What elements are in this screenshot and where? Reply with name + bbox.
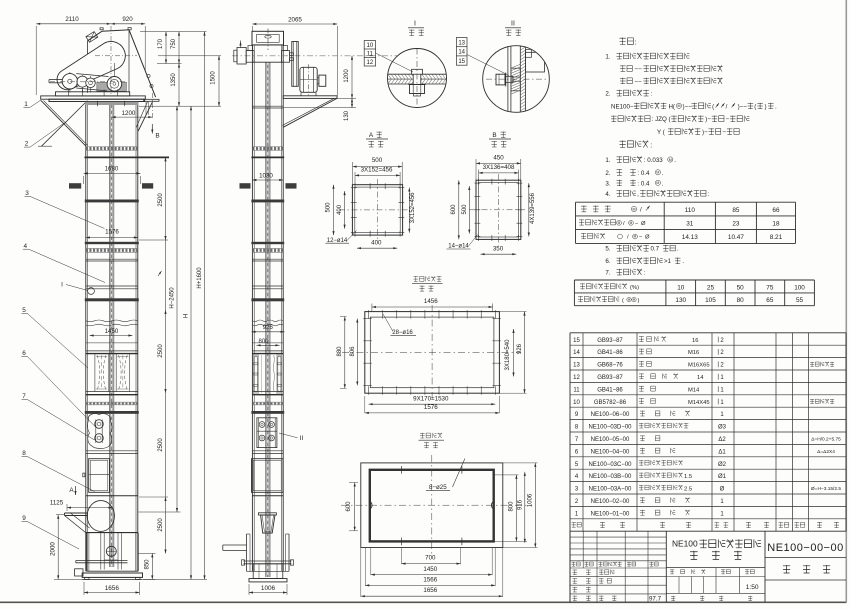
svg-text:B: B xyxy=(492,132,496,139)
svg-text:.: . xyxy=(674,157,676,164)
svg-text:31: 31 xyxy=(686,221,694,228)
svg-text:170: 170 xyxy=(158,38,164,49)
svg-text:)−: )− xyxy=(705,116,711,123)
svg-text:700: 700 xyxy=(425,555,436,562)
svg-text:500: 500 xyxy=(326,202,332,213)
svg-text:Ø: Ø xyxy=(720,487,725,493)
svg-text:M14X45: M14X45 xyxy=(688,400,710,406)
svg-text:H+1600: H+1600 xyxy=(197,267,203,289)
svg-text:5.: 5. xyxy=(605,246,610,253)
svg-text:14: 14 xyxy=(458,50,465,56)
svg-text:.: . xyxy=(662,180,664,187)
svg-text:3X152=456: 3X152=456 xyxy=(410,192,416,224)
svg-text:7.: 7. xyxy=(605,270,610,277)
svg-text:1125: 1125 xyxy=(50,500,64,507)
svg-text:/: / xyxy=(726,103,728,110)
svg-text:1200: 1200 xyxy=(344,69,350,83)
svg-text:)−−: )−− xyxy=(682,103,692,110)
svg-text:750: 750 xyxy=(171,38,177,49)
svg-text:.: . xyxy=(677,246,679,253)
svg-text:110: 110 xyxy=(685,207,696,214)
svg-text:: 0.033: : 0.033 xyxy=(644,157,663,164)
svg-text:2500: 2500 xyxy=(158,438,164,452)
svg-text:15: 15 xyxy=(573,338,580,344)
svg-text:10: 10 xyxy=(677,284,685,291)
svg-text:12: 12 xyxy=(573,375,580,381)
svg-text:M14: M14 xyxy=(688,387,700,393)
svg-text:4: 4 xyxy=(24,243,28,250)
svg-text:16: 16 xyxy=(692,338,698,344)
svg-text:2500: 2500 xyxy=(158,193,164,207)
svg-text:(%): (%) xyxy=(630,285,639,291)
svg-text:1656: 1656 xyxy=(423,587,437,594)
svg-text:GB68−76: GB68−76 xyxy=(597,363,623,369)
svg-text:/: / xyxy=(640,206,642,213)
svg-text:(: ( xyxy=(622,298,624,304)
svg-text:NE100−03B−00: NE100−03B−00 xyxy=(589,474,632,480)
svg-text:H−2450: H−2450 xyxy=(170,287,176,309)
svg-text:NE100−06−00: NE100−06−00 xyxy=(591,412,630,418)
svg-text:2500: 2500 xyxy=(158,518,164,532)
svg-text:): ) xyxy=(764,103,766,110)
svg-text:6: 6 xyxy=(22,350,26,357)
svg-text:1576: 1576 xyxy=(105,228,119,235)
svg-text:2: 2 xyxy=(25,141,29,148)
svg-text:1006: 1006 xyxy=(261,585,276,592)
svg-text:1450: 1450 xyxy=(423,566,437,573)
svg-text:M: M xyxy=(656,181,659,185)
svg-text:65: 65 xyxy=(766,297,774,304)
svg-text:400: 400 xyxy=(337,204,343,215)
svg-text:11: 11 xyxy=(573,387,580,393)
svg-text:1:50: 1:50 xyxy=(746,584,759,591)
svg-text:13: 13 xyxy=(573,363,580,369)
svg-text:I: I xyxy=(61,282,63,289)
svg-text:926: 926 xyxy=(517,343,523,354)
svg-text:10: 10 xyxy=(573,400,580,406)
svg-text:Ø2: Ø2 xyxy=(718,462,727,468)
svg-text:NE100−−: NE100−− xyxy=(611,103,638,110)
svg-text:75: 75 xyxy=(766,284,774,291)
svg-text:9X170=1530: 9X170=1530 xyxy=(413,396,449,403)
svg-text:3: 3 xyxy=(25,190,29,197)
svg-text:1.: 1. xyxy=(605,157,610,164)
svg-text:14.13: 14.13 xyxy=(682,234,698,241)
svg-text:A: A xyxy=(69,487,74,494)
svg-text:100: 100 xyxy=(794,284,805,291)
svg-text:1350: 1350 xyxy=(171,73,177,87)
svg-text:1500: 1500 xyxy=(211,71,217,85)
svg-text:.: . xyxy=(775,103,777,110)
svg-text:1: 1 xyxy=(24,101,28,108)
svg-text:: JZQ (: : JZQ ( xyxy=(652,116,672,123)
svg-text:10: 10 xyxy=(367,43,374,49)
svg-text:−: − xyxy=(726,116,730,123)
svg-text:B: B xyxy=(155,133,159,140)
svg-text:1566: 1566 xyxy=(423,577,437,584)
svg-text:850: 850 xyxy=(145,559,151,570)
svg-text:8.21: 8.21 xyxy=(770,234,783,241)
svg-text:97.7: 97.7 xyxy=(649,596,662,603)
svg-text:1450: 1450 xyxy=(105,328,119,335)
svg-text:Δ1: Δ1 xyxy=(718,449,726,455)
svg-text:NE100−03C−00: NE100−03C−00 xyxy=(588,462,632,468)
svg-text:NE100−03D−00: NE100−03D−00 xyxy=(588,425,632,431)
svg-text:800: 800 xyxy=(509,501,515,512)
svg-text:13: 13 xyxy=(458,41,465,47)
svg-text:Ø1: Ø1 xyxy=(718,474,727,480)
svg-text:NE100−00−00: NE100−00−00 xyxy=(767,542,843,554)
svg-text:1.: 1. xyxy=(605,54,610,61)
svg-text:Δ2: Δ2 xyxy=(718,437,726,443)
svg-text:926: 926 xyxy=(263,325,274,331)
svg-text:500: 500 xyxy=(372,157,383,164)
svg-text:3X180=540: 3X180=540 xyxy=(505,339,511,371)
svg-text:8−ø25: 8−ø25 xyxy=(429,484,447,491)
svg-text:3.: 3. xyxy=(605,180,610,187)
svg-text:2.: 2. xyxy=(605,91,610,98)
svg-text:130: 130 xyxy=(344,110,350,121)
svg-text:800: 800 xyxy=(258,339,269,345)
svg-text:2.5: 2.5 xyxy=(684,487,692,493)
svg-text:Δ=H/0.2+5.75: Δ=H/0.2+5.75 xyxy=(811,437,841,443)
svg-text:II: II xyxy=(511,21,515,28)
svg-text:2.: 2. xyxy=(605,170,610,177)
svg-text:2500: 2500 xyxy=(158,344,164,358)
svg-text:0.7: 0.7 xyxy=(650,246,659,253)
svg-text:1456: 1456 xyxy=(424,298,438,305)
svg-text:GB41−86: GB41−86 xyxy=(597,387,623,393)
svg-text:600: 600 xyxy=(451,204,457,215)
svg-text:10.47: 10.47 xyxy=(728,234,744,241)
svg-text:2110: 2110 xyxy=(65,16,79,23)
svg-text:1200: 1200 xyxy=(122,110,136,117)
svg-text:85: 85 xyxy=(732,207,740,214)
svg-text:NE100: NE100 xyxy=(672,539,698,549)
svg-text:GB5782−86: GB5782−86 xyxy=(594,400,627,406)
svg-text:6.: 6. xyxy=(605,258,610,265)
svg-text:Y (: Y ( xyxy=(657,129,666,136)
svg-text:H: H xyxy=(184,314,190,318)
svg-text:5: 5 xyxy=(22,307,26,314)
svg-text:M: M xyxy=(656,171,659,175)
svg-text:400: 400 xyxy=(371,240,382,247)
svg-text:8: 8 xyxy=(22,450,26,457)
svg-text::: : xyxy=(644,270,646,277)
svg-text::: : xyxy=(708,191,710,198)
svg-text:>1: >1 xyxy=(664,258,672,265)
svg-text:Ø=H−3.15/2.5: Ø=H−3.15/2.5 xyxy=(811,486,841,492)
svg-text:.: . xyxy=(662,170,664,177)
svg-text:1006: 1006 xyxy=(527,493,533,507)
svg-text:1680: 1680 xyxy=(105,166,119,173)
svg-text:12: 12 xyxy=(367,60,374,66)
svg-text:23: 23 xyxy=(732,221,740,228)
svg-text:GB93−87: GB93−87 xyxy=(597,375,623,381)
svg-text:II: II xyxy=(300,435,304,442)
svg-text:NE100−02−00: NE100−02−00 xyxy=(591,499,630,505)
svg-text:: 0.4: : 0.4 xyxy=(637,170,650,177)
svg-text:7: 7 xyxy=(22,393,26,400)
svg-text:1030: 1030 xyxy=(259,172,273,179)
svg-text:105: 105 xyxy=(705,297,716,304)
svg-text:M: M xyxy=(669,158,672,162)
svg-text:M: M xyxy=(633,207,636,211)
svg-text:350: 350 xyxy=(493,246,504,253)
svg-text:1656: 1656 xyxy=(105,585,120,592)
svg-text:4X139=556: 4X139=556 xyxy=(530,192,536,224)
svg-text:)−−: )−− xyxy=(738,103,748,110)
svg-text:Ø3: Ø3 xyxy=(718,425,727,431)
svg-text:916: 916 xyxy=(517,499,523,510)
svg-text:130: 130 xyxy=(675,297,686,304)
svg-text:NE100−05−00: NE100−05−00 xyxy=(591,437,630,443)
svg-text:: 0.4: : 0.4 xyxy=(637,180,650,187)
svg-text::: : xyxy=(635,40,637,47)
svg-text:M: M xyxy=(618,221,621,225)
svg-text:1.5: 1.5 xyxy=(684,474,692,480)
svg-text:2000: 2000 xyxy=(50,542,57,556)
svg-text:M: M xyxy=(677,104,680,108)
svg-text:I: I xyxy=(414,21,416,28)
svg-text:3X136=408: 3X136=408 xyxy=(483,164,515,171)
svg-text:GB93−87: GB93−87 xyxy=(597,338,623,344)
svg-text:M16: M16 xyxy=(688,350,699,356)
svg-text:9: 9 xyxy=(22,515,26,522)
svg-text:920: 920 xyxy=(122,16,133,23)
svg-text:3X152=456: 3X152=456 xyxy=(361,167,393,174)
svg-text::: : xyxy=(650,143,652,150)
svg-text:Ø: Ø xyxy=(645,235,650,241)
svg-text:GB41−86: GB41−86 xyxy=(597,350,623,356)
svg-text::: : xyxy=(650,91,652,98)
svg-text:14: 14 xyxy=(573,350,580,356)
svg-text:806: 806 xyxy=(350,346,356,357)
svg-text:M16X65: M16X65 xyxy=(688,363,710,369)
svg-text:A: A xyxy=(369,132,374,139)
svg-text:18: 18 xyxy=(772,221,780,228)
svg-text:600: 600 xyxy=(346,501,352,512)
svg-text:450: 450 xyxy=(493,154,504,161)
svg-text:−: − xyxy=(722,129,726,136)
svg-text:25: 25 xyxy=(707,284,715,291)
svg-text:880: 880 xyxy=(337,346,343,357)
svg-text:M: M xyxy=(630,221,633,225)
svg-text:NE100−03A−00: NE100−03A−00 xyxy=(589,487,632,493)
svg-text:14: 14 xyxy=(697,375,704,381)
svg-text:H(: H( xyxy=(668,103,675,110)
svg-text:−−: −− xyxy=(634,78,642,85)
svg-text:Δ=Δ2X4: Δ=Δ2X4 xyxy=(817,449,835,455)
svg-text:NE100−04−00: NE100−04−00 xyxy=(591,449,630,455)
svg-text:500: 500 xyxy=(462,204,468,215)
svg-text:M: M xyxy=(634,235,637,239)
svg-text:66: 66 xyxy=(772,207,780,214)
svg-text:,: , xyxy=(637,191,639,198)
svg-text:2065: 2065 xyxy=(288,16,302,23)
svg-text:11: 11 xyxy=(367,52,374,58)
svg-text:80: 80 xyxy=(737,297,745,304)
svg-text:−−: −− xyxy=(634,66,642,73)
svg-text:1576: 1576 xyxy=(424,404,438,411)
svg-text:55: 55 xyxy=(796,297,804,304)
svg-text:15: 15 xyxy=(458,59,465,65)
svg-text:): ) xyxy=(638,298,640,304)
svg-text:Ø: Ø xyxy=(641,221,646,227)
svg-text:.: . xyxy=(682,258,684,265)
svg-text:50: 50 xyxy=(737,284,745,291)
svg-text:)−: )− xyxy=(702,129,708,136)
svg-text:NE100−01−00: NE100−01−00 xyxy=(591,511,630,517)
svg-text:4.: 4. xyxy=(605,191,610,198)
